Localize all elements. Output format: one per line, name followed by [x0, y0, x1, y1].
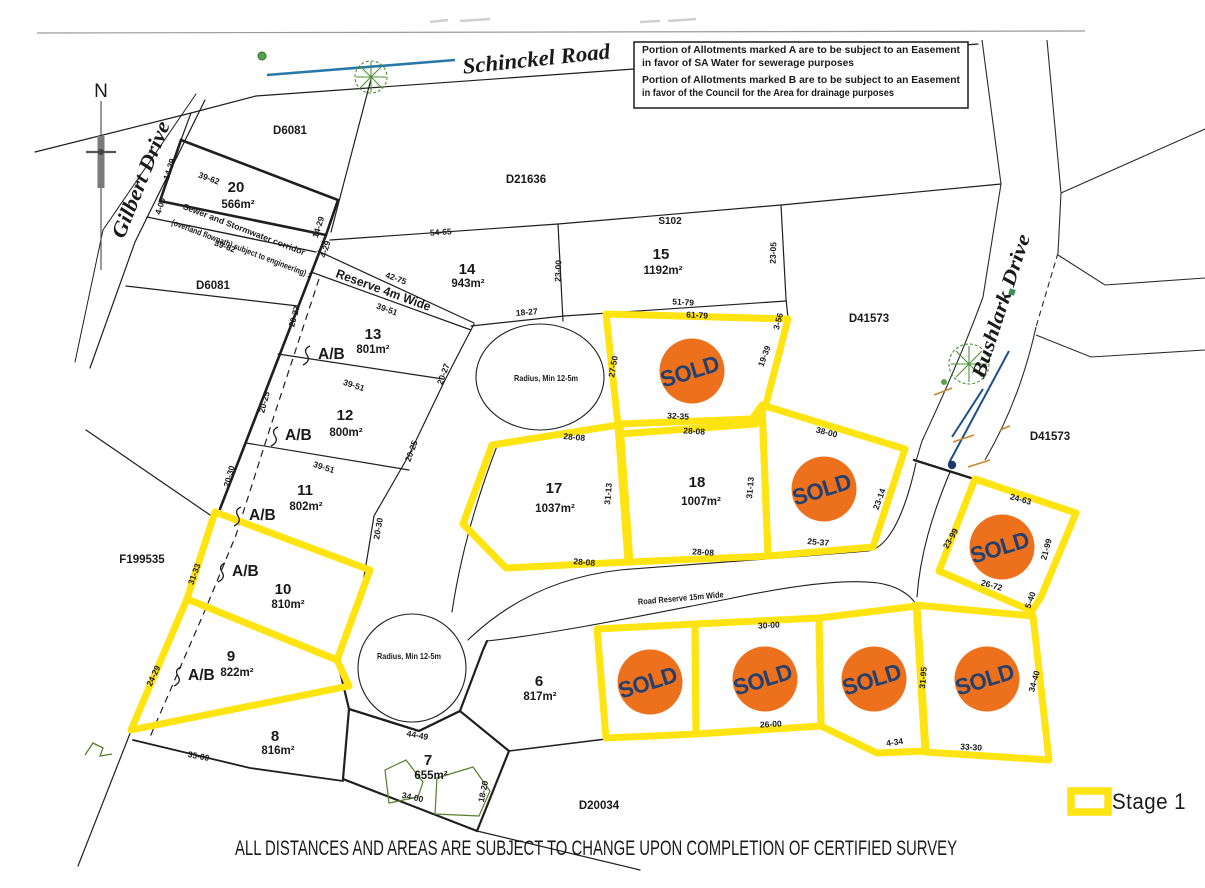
svg-text:28-08: 28-08 — [683, 425, 706, 436]
svg-text:32-35: 32-35 — [667, 410, 690, 421]
svg-text:61-79: 61-79 — [686, 309, 709, 320]
svg-text:23-00: 23-00 — [553, 260, 564, 282]
svg-text:33-30: 33-30 — [960, 741, 983, 752]
svg-text:17: 17 — [546, 480, 563, 497]
svg-text:D21636: D21636 — [506, 174, 546, 186]
svg-text:30-00: 30-00 — [758, 619, 781, 630]
svg-text:31-13: 31-13 — [744, 476, 756, 499]
svg-text:8: 8 — [271, 728, 279, 745]
svg-text:Stage 1: Stage 1 — [1112, 789, 1186, 814]
svg-text:18-27: 18-27 — [515, 306, 538, 318]
svg-text:A/B: A/B — [249, 507, 276, 524]
svg-text:D6081: D6081 — [196, 280, 230, 292]
svg-text:816m²: 816m² — [261, 745, 294, 757]
svg-text:15: 15 — [653, 246, 670, 263]
svg-text:800m²: 800m² — [329, 427, 362, 439]
svg-text:D41573: D41573 — [849, 313, 889, 325]
svg-text:817m²: 817m² — [523, 691, 556, 703]
svg-text:A/B: A/B — [232, 563, 259, 580]
svg-text:26-00: 26-00 — [760, 718, 783, 729]
svg-text:18: 18 — [689, 474, 706, 491]
svg-text:28-08: 28-08 — [573, 556, 596, 568]
svg-text:20: 20 — [228, 179, 245, 196]
svg-text:F199535: F199535 — [119, 554, 165, 566]
svg-text:12: 12 — [337, 407, 354, 424]
svg-text:810m²: 810m² — [271, 599, 304, 611]
svg-text:in favor of the Council for th: in favor of the Council for the Area for… — [642, 87, 894, 99]
svg-text:D20034: D20034 — [579, 800, 620, 812]
svg-text:28-08: 28-08 — [692, 546, 715, 557]
svg-text:801m²: 801m² — [356, 344, 389, 356]
svg-text:13: 13 — [365, 326, 382, 343]
svg-text:ALL DISTANCES AND AREAS ARE SU: ALL DISTANCES AND AREAS ARE SUBJECT TO C… — [235, 837, 957, 860]
svg-text:25-37: 25-37 — [807, 536, 830, 548]
svg-text:1037m²: 1037m² — [535, 503, 575, 515]
svg-text:6: 6 — [535, 673, 543, 690]
svg-text:S102: S102 — [658, 216, 682, 227]
svg-text:Radius, Min 12-5m: Radius, Min 12-5m — [377, 651, 441, 661]
svg-text:7: 7 — [424, 752, 432, 769]
svg-text:A/B: A/B — [285, 427, 312, 444]
svg-text:11: 11 — [297, 482, 313, 499]
svg-text:Portion of Allotments marked A: Portion of Allotments marked A are to be… — [642, 44, 960, 56]
svg-text:14: 14 — [459, 261, 476, 278]
svg-text:802m²: 802m² — [289, 501, 322, 513]
svg-text:A/B: A/B — [188, 667, 215, 684]
svg-text:655m²: 655m² — [414, 770, 447, 782]
svg-text:822m²: 822m² — [220, 667, 253, 679]
svg-text:10: 10 — [275, 581, 292, 598]
svg-text:D6081: D6081 — [273, 125, 307, 137]
svg-text:54-65: 54-65 — [430, 226, 453, 238]
svg-text:N: N — [94, 81, 108, 102]
svg-text:Radius, Min 12-5m: Radius, Min 12-5m — [514, 373, 578, 383]
svg-text:1007m²: 1007m² — [681, 496, 721, 508]
svg-text:1192m²: 1192m² — [643, 265, 682, 277]
svg-text:Portion of Allotments marked B: Portion of Allotments marked B are to be… — [642, 74, 960, 86]
svg-text:in favor of SA Water for sewer: in favor of SA Water for sewerage purpos… — [642, 57, 854, 69]
svg-text:23-05: 23-05 — [768, 242, 779, 264]
svg-text:943m²: 943m² — [451, 278, 484, 290]
svg-text:D41573: D41573 — [1030, 431, 1070, 443]
svg-text:A/B: A/B — [318, 346, 345, 363]
svg-text:28-08: 28-08 — [563, 431, 586, 443]
svg-text:566m²: 566m² — [221, 199, 254, 211]
svg-text:31-95: 31-95 — [917, 666, 929, 689]
svg-text:31-13: 31-13 — [602, 482, 614, 505]
svg-text:9: 9 — [227, 648, 235, 665]
svg-text:51-79: 51-79 — [672, 296, 695, 307]
